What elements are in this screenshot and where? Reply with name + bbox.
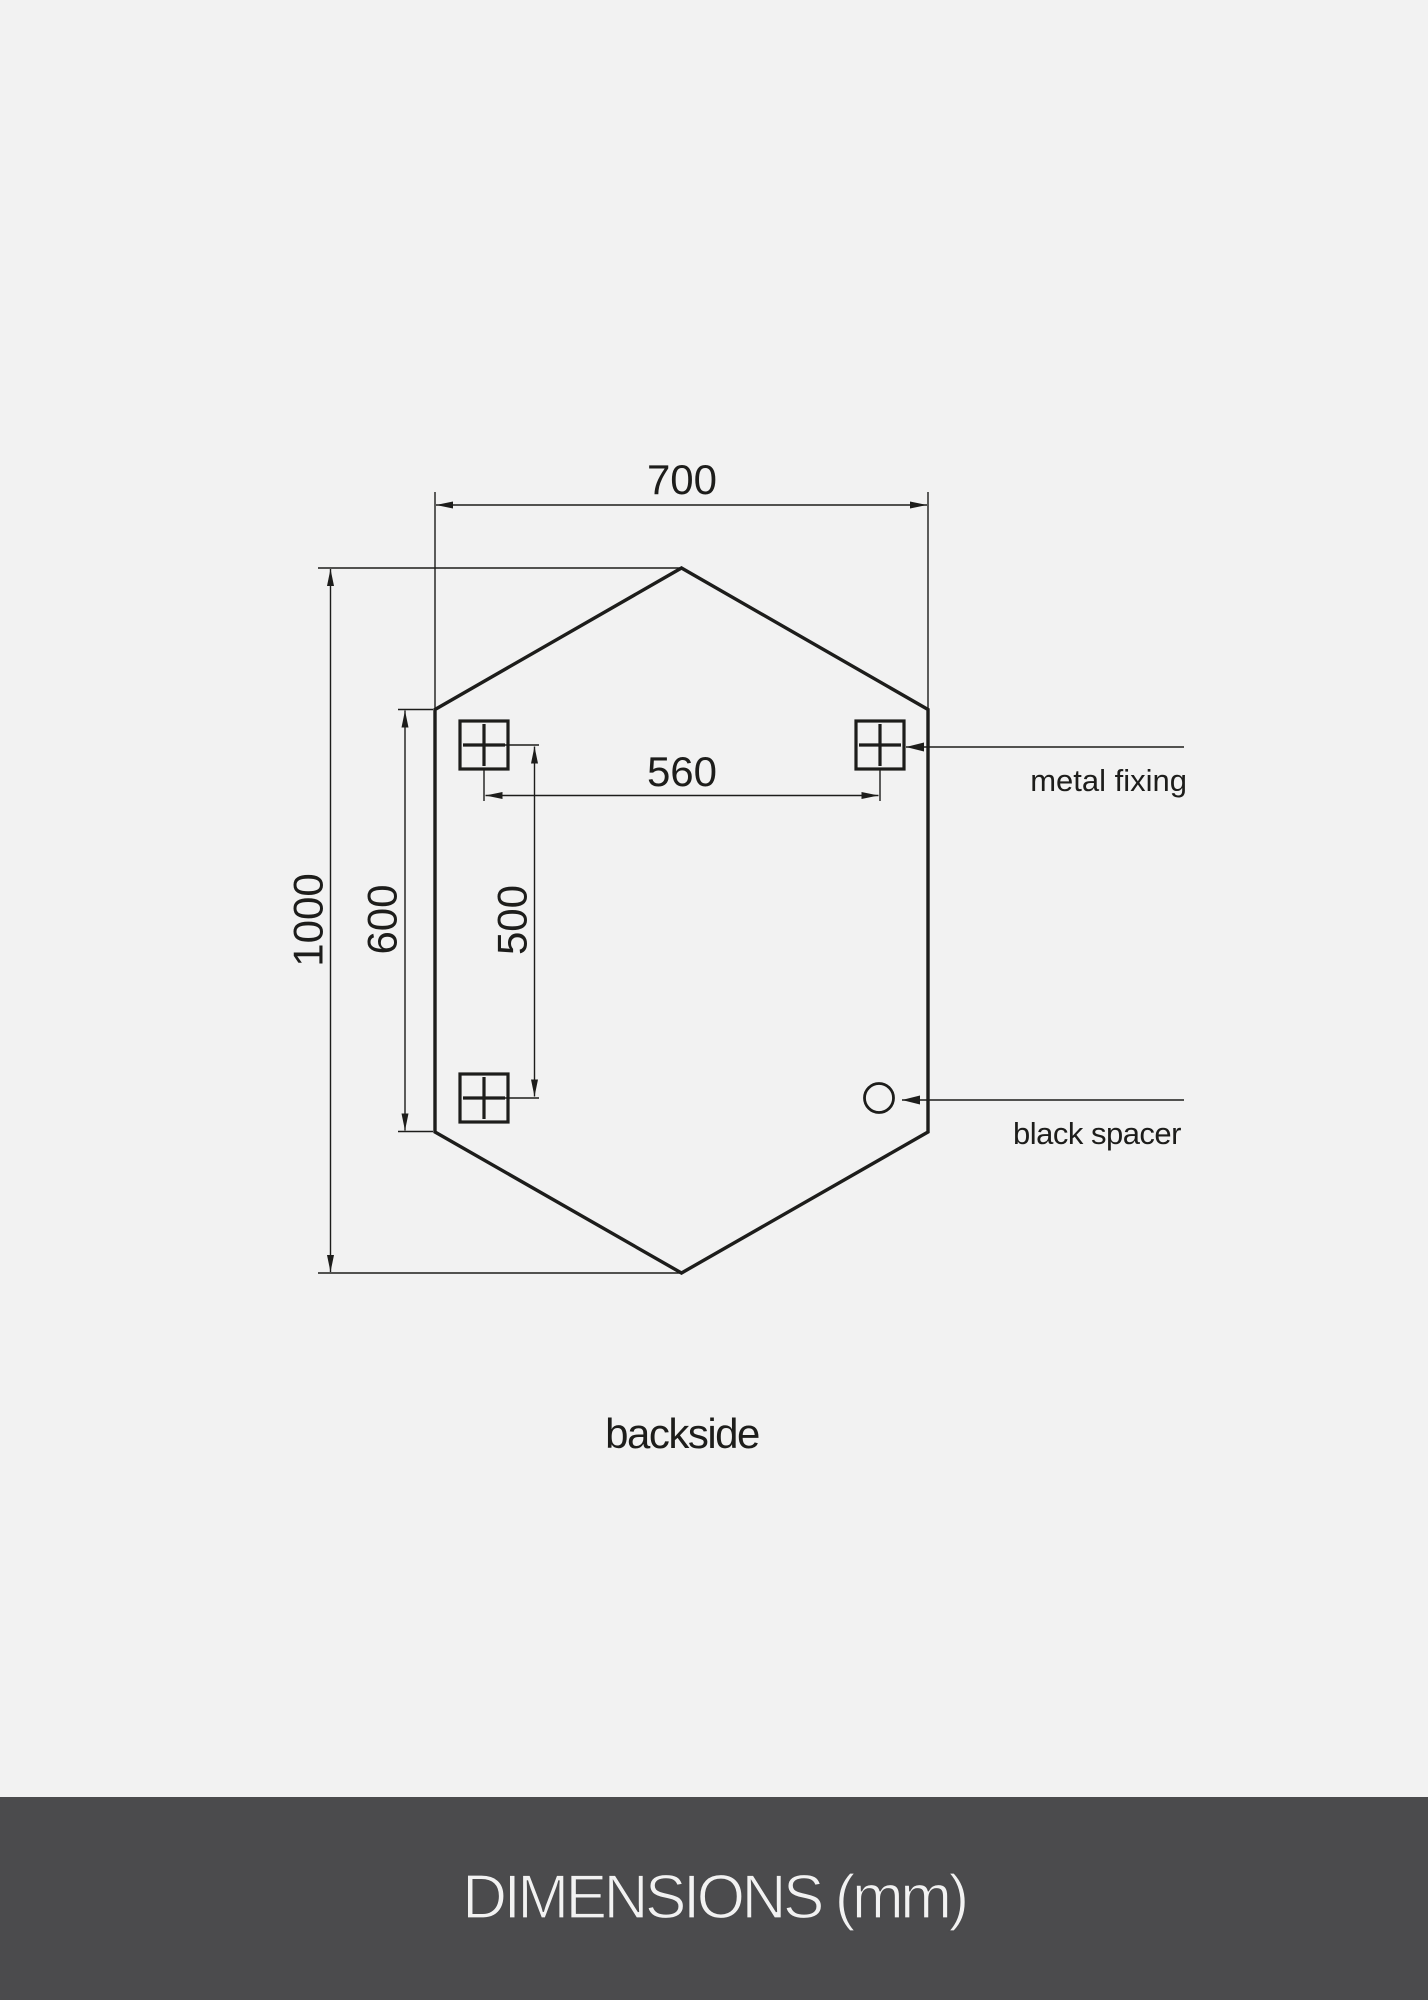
- svg-text:black spacer: black spacer: [1013, 1116, 1181, 1151]
- svg-text:backside: backside: [605, 1410, 759, 1457]
- svg-text:700: 700: [647, 456, 717, 503]
- svg-text:500: 500: [489, 885, 536, 955]
- svg-text:1000: 1000: [285, 873, 332, 966]
- svg-text:560: 560: [647, 748, 717, 795]
- svg-text:600: 600: [359, 884, 406, 954]
- svg-text:metal fixing: metal fixing: [1030, 763, 1187, 798]
- svg-text:DIMENSIONS (mm): DIMENSIONS (mm): [462, 1863, 966, 1932]
